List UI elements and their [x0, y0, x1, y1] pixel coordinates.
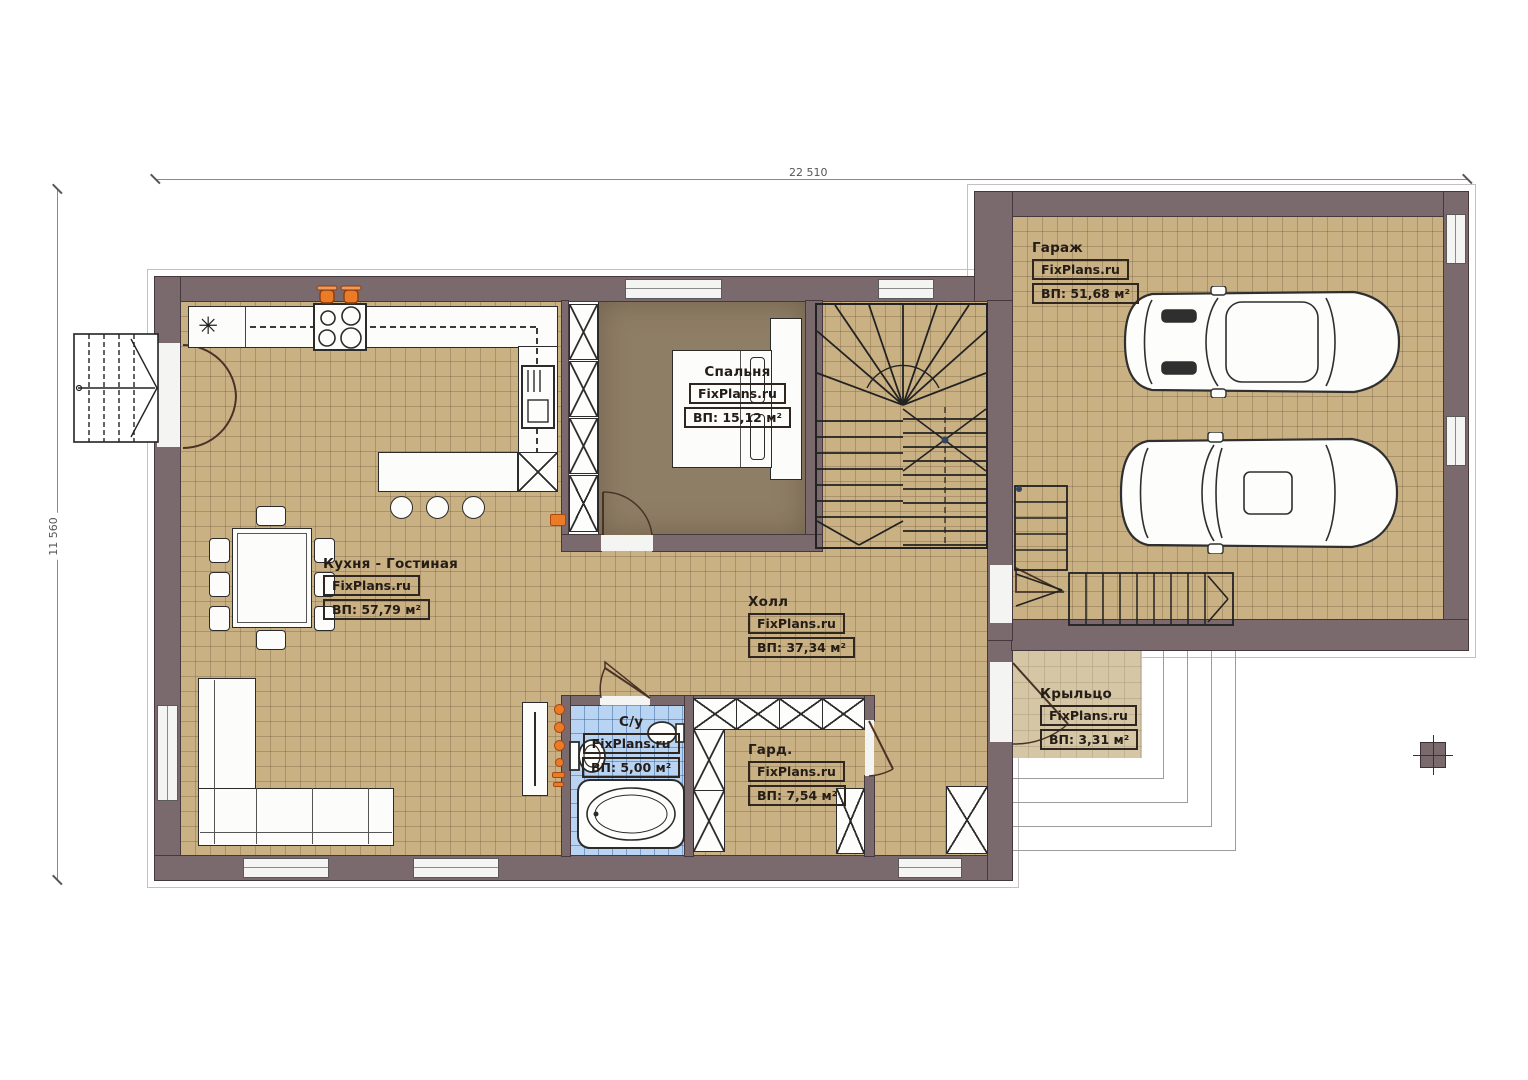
main-staircase: [815, 303, 988, 549]
bar-stool: [462, 496, 485, 519]
sofa-cushion-line: [256, 788, 257, 844]
window-left: [157, 705, 178, 801]
room-label-porch: Крыльцо FixPlans.ru ВП: 3,31 м²: [1040, 686, 1138, 750]
room-label-kitchen: Кухня - Гостиная FixPlans.ru ВП: 57,79 м…: [323, 556, 458, 620]
room-name: Гард.: [748, 742, 846, 758]
dining-chair: [209, 572, 230, 597]
door-gap-hall-garage: [990, 565, 1012, 623]
room-name: Кухня - Гостиная: [323, 556, 458, 572]
sofa-back-line: [200, 832, 392, 833]
brand-box: FixPlans.ru: [748, 761, 845, 782]
dining-chair: [256, 630, 286, 650]
room-label-hall: Холл FixPlans.ru ВП: 37,34 м²: [748, 594, 855, 658]
sofa-horizontal: [198, 788, 394, 846]
wardrobe-door: [862, 716, 900, 782]
room-name: Крыльцо: [1040, 686, 1138, 702]
car-2: [1114, 432, 1406, 554]
room-name: С/у: [582, 714, 680, 730]
wall-bedroom-bottom-b: [653, 535, 822, 551]
candle-bar: [552, 772, 565, 778]
window-bedroom-top: [625, 279, 722, 299]
closet-cell: [569, 304, 598, 360]
dimension-top-value: 22 510: [785, 166, 832, 179]
wardrobe-cabinet: [693, 790, 725, 852]
window-stairs-top: [878, 279, 934, 299]
closet-cell: [569, 361, 598, 417]
porch-pillar: [1420, 742, 1446, 768]
sink-icon: ✳: [198, 314, 218, 338]
dining-table-inner: [237, 533, 307, 623]
bathtub: [576, 778, 686, 850]
garage-wall-left: [975, 192, 1012, 301]
dimension-line-top: [155, 179, 1468, 180]
wardrobe-cabinet: [779, 698, 823, 730]
fridge-icon: [520, 364, 556, 430]
room-name: Холл: [748, 594, 855, 610]
brand-box: FixPlans.ru: [689, 383, 786, 404]
bedroom-door: [598, 488, 656, 538]
brand-box: FixPlans.ru: [1040, 705, 1137, 726]
wall-bedroom-left: [562, 301, 568, 535]
room-label-bedroom: Спальня FixPlans.ru ВП: 15,12 м²: [684, 364, 791, 428]
candle: [554, 722, 565, 733]
kitchen-island: [378, 452, 518, 492]
bathroom-door: [596, 658, 656, 702]
area-box: ВП: 37,34 м²: [748, 637, 855, 658]
window-bottom-2: [413, 858, 499, 878]
wardrobe-cabinet: [736, 698, 780, 730]
brand-box: FixPlans.ru: [323, 575, 420, 596]
floor-plan: 22 510 11 560: [0, 0, 1528, 1080]
candle-bar: [553, 782, 564, 787]
counter-dash-line: [250, 326, 536, 328]
wardrobe-cabinet: [693, 729, 725, 791]
room-name: Гараж: [1032, 240, 1139, 256]
area-box: ВП: 7,54 м²: [748, 785, 846, 806]
area-box: ВП: 15,12 м²: [684, 407, 791, 428]
wardrobe-cabinet: [822, 698, 865, 730]
dining-chair: [209, 538, 230, 563]
wall-wardrobe-right-b: [865, 776, 874, 856]
area-box: ВП: 3,31 м²: [1040, 729, 1138, 750]
candle: [555, 758, 564, 767]
room-label-wardrobe: Гард. FixPlans.ru ВП: 7,54 м²: [748, 742, 846, 806]
tv-line: [534, 712, 536, 786]
bar-stool: [390, 496, 413, 519]
room-label-bathroom: С/у FixPlans.ru ВП: 5,00 м²: [582, 714, 680, 778]
window-garage-right-1: [1446, 214, 1466, 264]
garage-wall-top: [975, 192, 1468, 216]
exterior-stair: [73, 333, 159, 443]
car-1: [1118, 286, 1408, 398]
area-box: ВП: 51,68 м²: [1032, 283, 1139, 304]
closet-cell: [569, 418, 598, 474]
brand-box: FixPlans.ru: [583, 733, 680, 754]
room-label-garage: Гараж FixPlans.ru ВП: 51,68 м²: [1032, 240, 1139, 304]
bar-stool: [426, 496, 449, 519]
counter-divider: [245, 307, 246, 347]
window-bottom-1: [243, 858, 329, 878]
hall-cabinet: [946, 786, 988, 854]
wall-bath-wardrobe: [685, 696, 693, 856]
area-box: ВП: 57,79 м²: [323, 599, 430, 620]
stove-icon: [312, 298, 368, 352]
garage-ramp: [1068, 572, 1234, 626]
area-box: ВП: 5,00 м²: [582, 757, 680, 778]
candle: [554, 704, 565, 715]
dining-chair: [256, 506, 286, 526]
sofa-cushion-line: [312, 788, 313, 844]
wardrobe-cabinet: [693, 698, 737, 730]
room-name: Спальня: [684, 364, 791, 380]
island-cabinet: [518, 452, 558, 492]
brand-box: FixPlans.ru: [1032, 259, 1129, 280]
counter-decor: [550, 514, 566, 526]
sofa-cushion-line: [368, 788, 369, 844]
candle: [554, 740, 565, 751]
entry-double-door: [175, 338, 245, 454]
garage-corner-stair: [1014, 484, 1070, 626]
window-bottom-3: [898, 858, 962, 878]
wall-bedroom-bottom-a: [562, 535, 601, 551]
window-garage-right-2: [1446, 416, 1466, 466]
brand-box: FixPlans.ru: [748, 613, 845, 634]
dining-chair: [209, 606, 230, 631]
pot-icon: [340, 284, 362, 304]
closet-cell: [569, 475, 598, 532]
sofa-cushion-line: [214, 680, 215, 844]
dimension-left-value: 11 560: [47, 513, 60, 560]
pot-icon: [316, 284, 338, 304]
